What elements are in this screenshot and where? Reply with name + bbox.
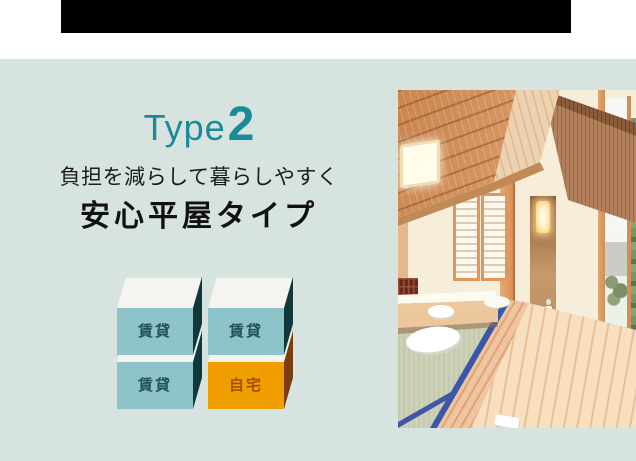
- type-badge-word: Type: [144, 110, 226, 146]
- vase-flower: [546, 299, 551, 305]
- diagram-box-rental-top-right: 賃貸: [208, 308, 284, 355]
- outside-greenery: [605, 272, 627, 306]
- type-badge: Type 2: [0, 101, 398, 149]
- box-top-face: [208, 278, 293, 308]
- diagram-box-rental-bottom-left: 賃貸: [117, 362, 193, 409]
- box-label: 賃貸: [138, 324, 172, 339]
- shoji-window-right: [481, 193, 508, 281]
- box-label: 賃貸: [138, 378, 172, 393]
- type2-section: Type 2 負担を減らして暮らしやすく 安心平屋タイプ 賃貸 自宅: [0, 59, 636, 461]
- section-subtitle: 負担を減らして暮らしやすく: [0, 165, 398, 190]
- type2-text-column: Type 2 負担を減らして暮らしやすく 安心平屋タイプ 賃貸 自宅: [0, 59, 398, 461]
- box-label: 賃貸: [229, 324, 263, 339]
- ownership-box-diagram: 賃貸 自宅 賃貸 賃貸: [117, 277, 299, 409]
- wall-lamp: [536, 201, 550, 233]
- box-front-face: 賃貸: [208, 308, 284, 355]
- box-front-face: 賃貸: [117, 308, 193, 355]
- type-badge-number: 2: [228, 101, 255, 149]
- outside-building: [605, 240, 627, 276]
- box-top-face: [117, 278, 202, 308]
- cushion-back: [484, 296, 510, 308]
- top-black-bar: [61, 0, 571, 33]
- shoji-window-left: [453, 193, 480, 281]
- box-front-face: 自宅: [208, 362, 284, 409]
- box-front-face: 賃貸: [117, 362, 193, 409]
- box-label: 自宅: [229, 378, 263, 393]
- ceiling-light: [400, 139, 440, 189]
- interior-photo: [398, 90, 636, 428]
- section-title: 安心平屋タイプ: [0, 199, 398, 235]
- diagram-box-home-bottom-right: 自宅: [208, 362, 284, 409]
- diagram-box-rental-top-left: 賃貸: [117, 308, 193, 355]
- cushion-middle: [428, 305, 454, 318]
